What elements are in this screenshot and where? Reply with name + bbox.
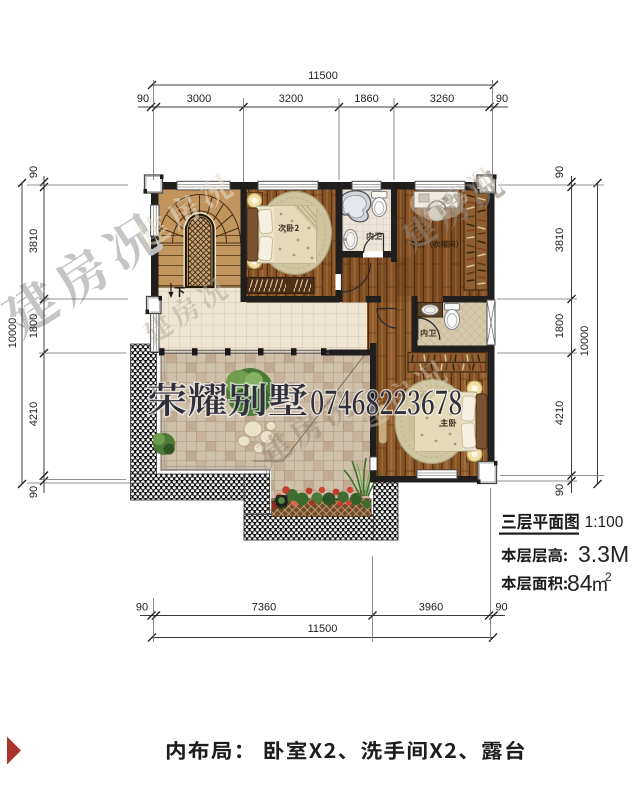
svg-text:4210: 4210: [554, 401, 566, 425]
svg-text:1860: 1860: [354, 93, 378, 105]
svg-text:10000: 10000: [579, 326, 591, 357]
svg-text:3260: 3260: [430, 93, 454, 105]
svg-text:90: 90: [28, 486, 40, 498]
svg-text:11500: 11500: [308, 623, 338, 635]
svg-text:3200: 3200: [279, 93, 303, 105]
svg-text:2: 2: [605, 570, 612, 584]
svg-text:3000: 3000: [187, 93, 211, 105]
svg-text:3810: 3810: [554, 228, 566, 252]
svg-text:90: 90: [554, 484, 566, 496]
svg-text:1:100: 1:100: [585, 514, 624, 531]
svg-text:11500: 11500: [308, 70, 338, 82]
svg-text:84: 84: [567, 570, 593, 596]
svg-text:4210: 4210: [28, 402, 40, 426]
svg-text:1800: 1800: [554, 314, 566, 338]
svg-text:3960: 3960: [419, 602, 443, 614]
svg-text:90: 90: [554, 166, 566, 178]
svg-text:7360: 7360: [252, 602, 276, 614]
svg-text:90: 90: [28, 166, 40, 178]
svg-text:3810: 3810: [28, 229, 40, 253]
svg-text:90: 90: [495, 602, 507, 614]
svg-text:90: 90: [496, 93, 508, 105]
svg-text:10000: 10000: [7, 318, 19, 349]
svg-text:1800: 1800: [28, 314, 40, 338]
svg-text:90: 90: [137, 93, 149, 105]
svg-text:3.3M: 3.3M: [578, 541, 629, 567]
svg-text:90: 90: [136, 602, 148, 614]
